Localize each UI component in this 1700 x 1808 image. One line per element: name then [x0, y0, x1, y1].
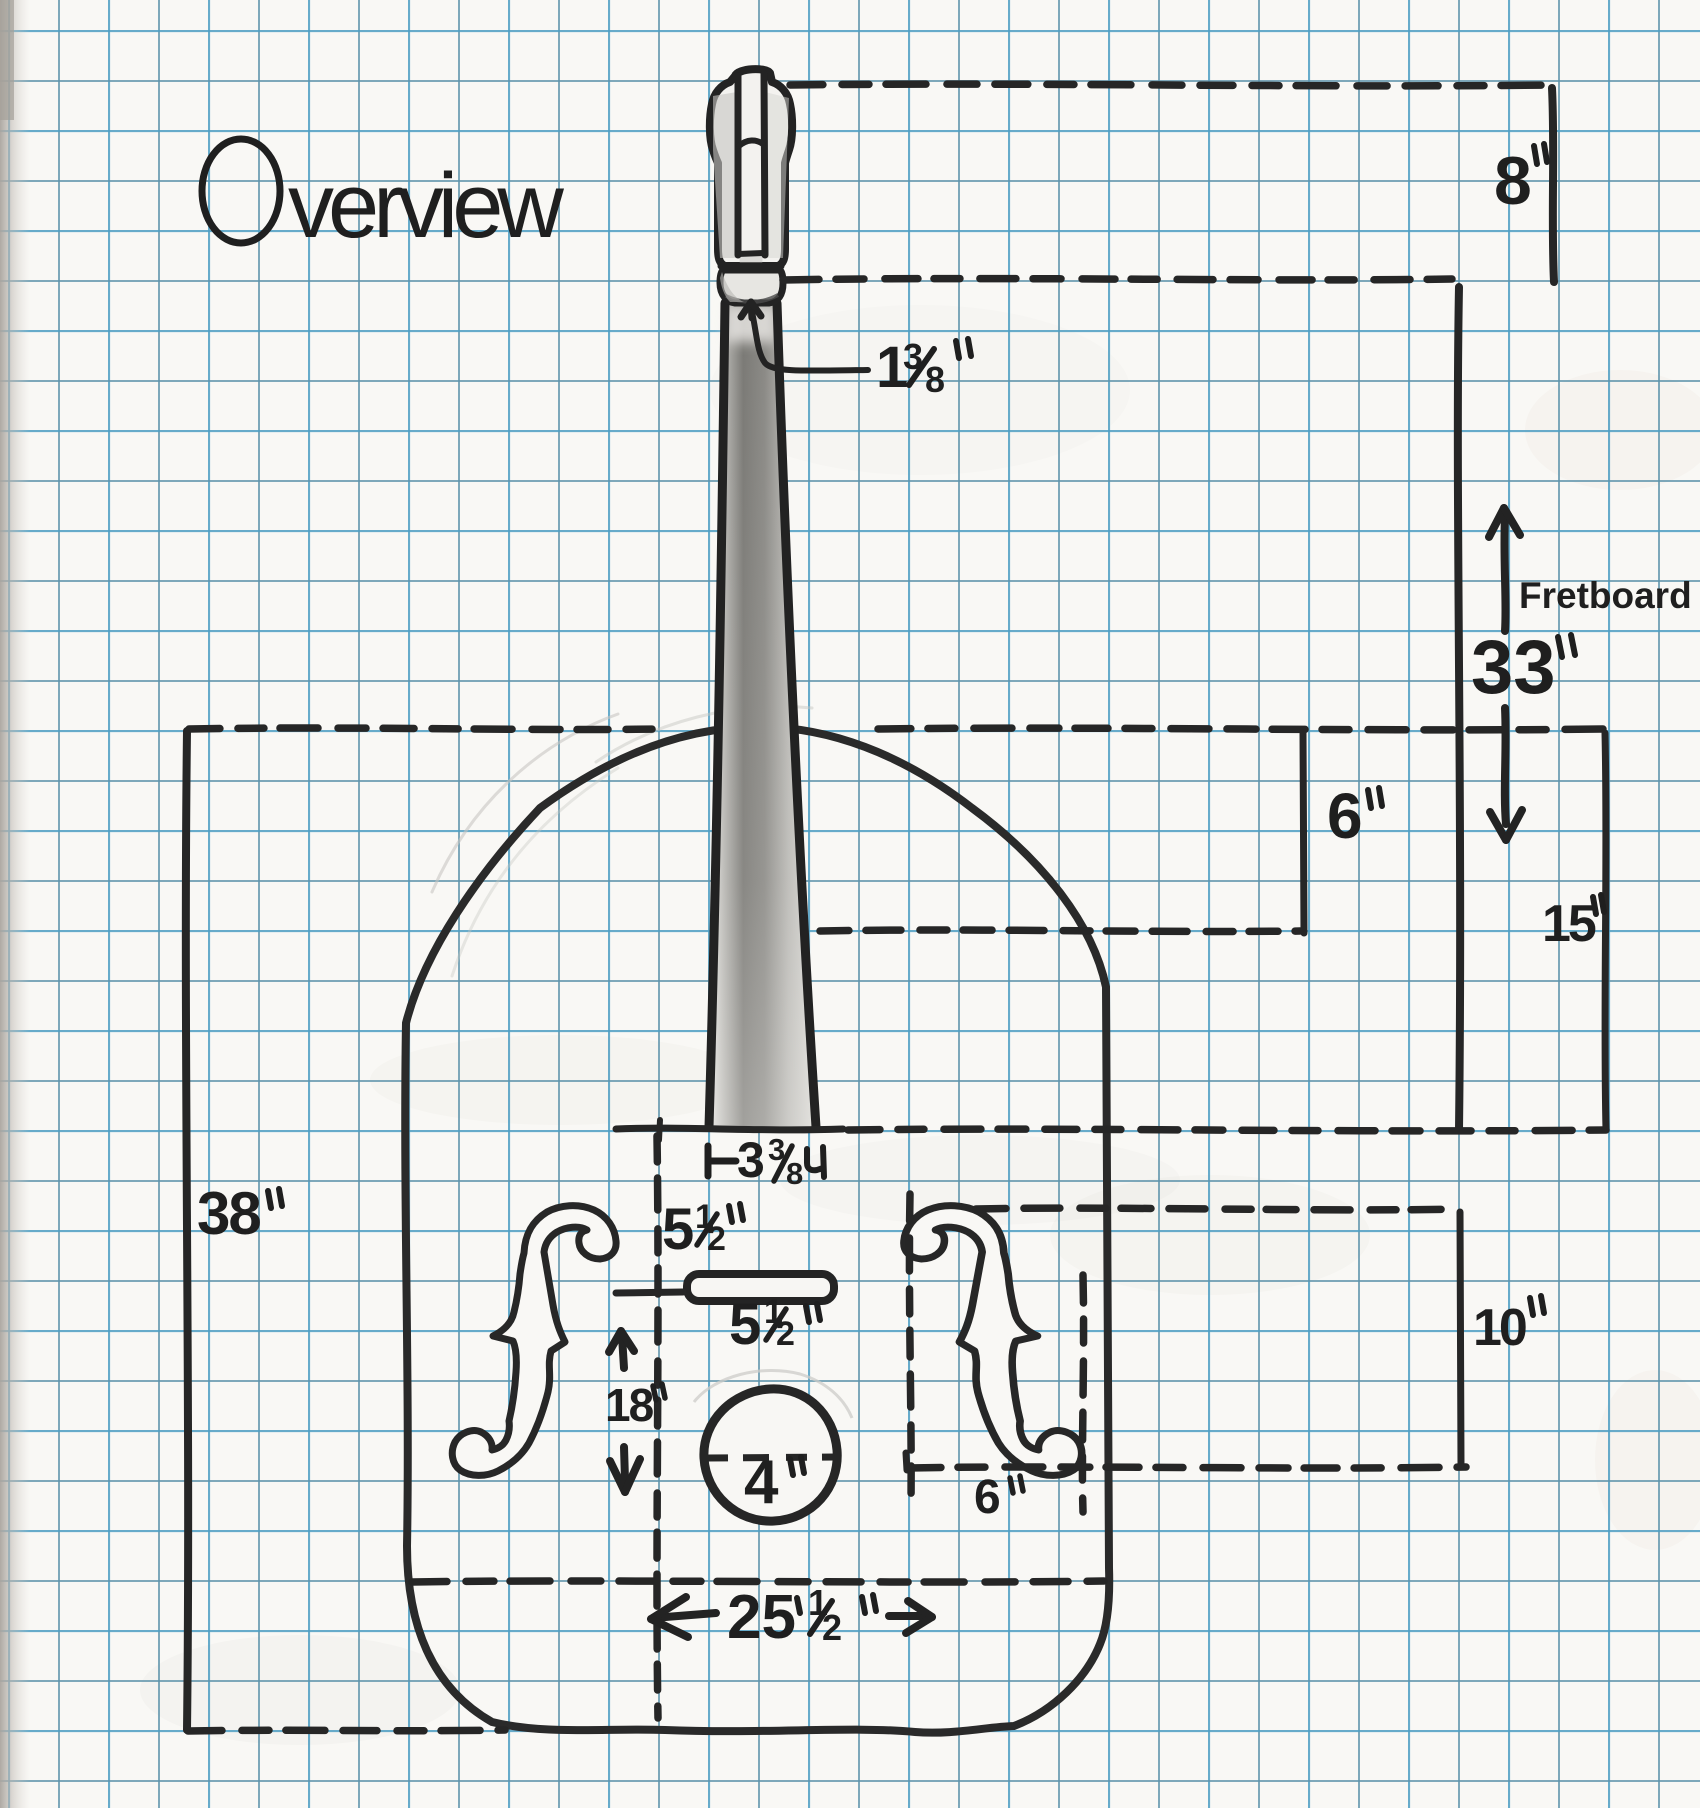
svg-text:18: 18: [605, 1379, 654, 1431]
svg-text:3: 3: [737, 1132, 765, 1188]
svg-text:4: 4: [744, 1448, 779, 1517]
svg-text:Fretboard: Fretboard: [1519, 575, 1692, 616]
svg-text:38: 38: [197, 1180, 260, 1247]
svg-text:2: 2: [776, 1315, 795, 1353]
svg-text:8: 8: [925, 359, 945, 400]
svg-text:6: 6: [974, 1471, 1001, 1524]
svg-text:6: 6: [1327, 780, 1363, 852]
svg-text:8: 8: [786, 1156, 803, 1191]
svg-text:10: 10: [1473, 1299, 1526, 1357]
svg-text:8: 8: [1494, 143, 1532, 219]
svg-text:5: 5: [729, 1292, 761, 1357]
svg-text:verview: verview: [288, 155, 564, 257]
svg-text:2: 2: [707, 1220, 726, 1258]
svg-text:25: 25: [727, 1583, 796, 1652]
svg-text:2: 2: [822, 1607, 842, 1648]
svg-text:15: 15: [1542, 895, 1596, 953]
svg-text:33: 33: [1471, 625, 1556, 710]
svg-text:5: 5: [662, 1197, 694, 1262]
